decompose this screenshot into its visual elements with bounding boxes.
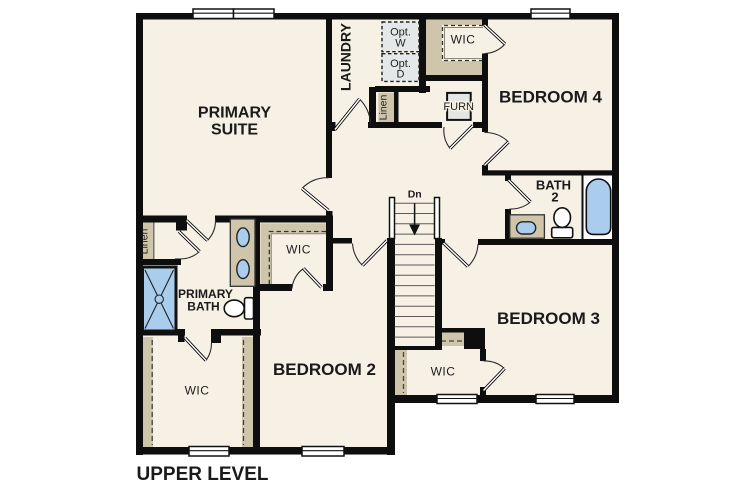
svg-text:BEDROOM 4: BEDROOM 4 (499, 88, 603, 107)
svg-text:WIC: WIC (451, 33, 476, 47)
svg-text:D: D (397, 69, 405, 81)
svg-text:Linen: Linen (378, 95, 390, 121)
svg-text:2: 2 (551, 190, 558, 205)
svg-text:WIC: WIC (185, 384, 210, 398)
svg-text:BEDROOM 2: BEDROOM 2 (273, 360, 376, 379)
svg-text:LAUNDRY: LAUNDRY (338, 22, 354, 91)
svg-text:PRIMARY: PRIMARY (198, 105, 272, 122)
svg-text:W: W (395, 38, 406, 50)
svg-text:BEDROOM 3: BEDROOM 3 (497, 309, 600, 328)
svg-text:WIC: WIC (286, 243, 311, 257)
svg-text:Linen: Linen (138, 229, 150, 255)
svg-text:Dn: Dn (408, 189, 422, 201)
svg-text:BATH: BATH (187, 300, 219, 314)
svg-text:WIC: WIC (431, 365, 456, 379)
svg-text:SUITE: SUITE (211, 122, 258, 139)
svg-text:FURN: FURN (443, 101, 474, 113)
svg-text:UPPER LEVEL: UPPER LEVEL (137, 464, 269, 485)
